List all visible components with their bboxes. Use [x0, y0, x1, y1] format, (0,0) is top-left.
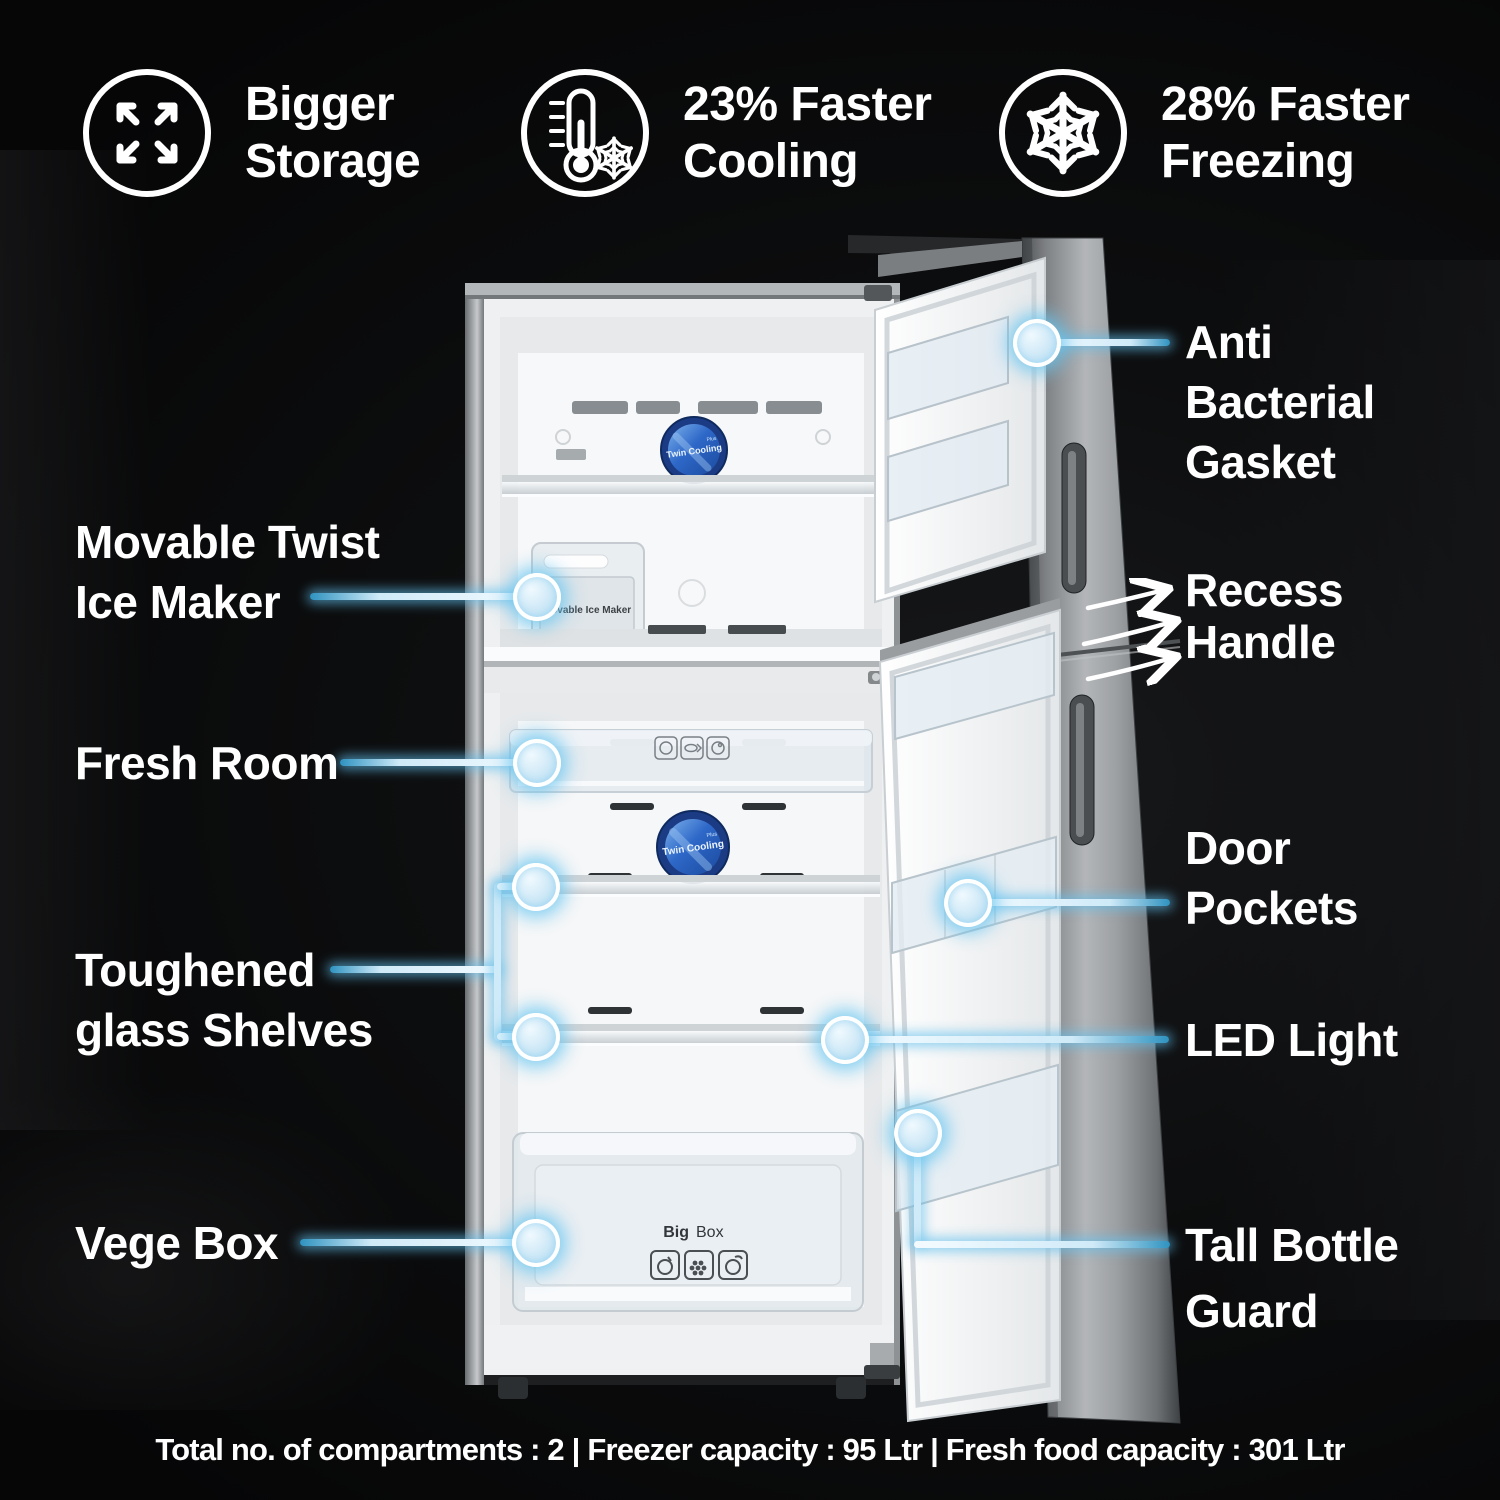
label-line: Handle [1185, 616, 1343, 668]
freezer-glass-shelf [502, 475, 880, 497]
feature-faster-freezing-label: 28% Faster Freezing [1161, 76, 1409, 190]
label-line: Anti [1185, 312, 1375, 372]
callout-label-vege-box: Vege Box [75, 1213, 278, 1273]
label-line: Recess [1185, 564, 1343, 616]
capacity-specs-text: Total no. of compartments : 2 | Freezer … [0, 1432, 1500, 1468]
callout-line-door-pockets [970, 899, 1170, 906]
feature-bigger-storage-label: Bigger Storage [245, 76, 420, 190]
callout-label-toughened-shelves: Toughened glass Shelves [75, 940, 373, 1060]
callout-dot-shelf-upper [512, 863, 560, 911]
big-box-label: Box [696, 1224, 724, 1241]
callout-bracket-shelves [494, 883, 501, 1041]
callout-dot-fresh-room [513, 739, 561, 787]
label-line: Movable Twist [75, 512, 379, 572]
twin-cooling-badge-freezer: Twin Cooling Plus [661, 417, 727, 483]
feature-faster-cooling-label: 23% Faster Cooling [683, 76, 931, 190]
callout-dot-led-light [821, 1016, 869, 1064]
label-line: Gasket [1185, 432, 1375, 492]
callout-line-tall-bottle [914, 1241, 1170, 1248]
feature-line: Bigger [245, 76, 420, 133]
callout-dot-vege-box [512, 1219, 560, 1267]
label-line: LED Light [1185, 1010, 1398, 1070]
feature-line: Cooling [683, 133, 931, 190]
label-line: Door [1185, 818, 1358, 878]
feature-faster-cooling: 23% Faster Cooling [515, 63, 931, 203]
callout-line-vege-box [300, 1239, 538, 1246]
callout-label-anti-bacterial-gasket: Anti Bacterial Gasket [1185, 312, 1375, 492]
callout-line-fresh-room [340, 759, 540, 766]
fresh-room-drawer [510, 730, 872, 792]
thermometer-snowflake-icon [515, 63, 655, 203]
recess-handle-arrows-icon [1080, 578, 1190, 688]
label-line: Tall Bottle [1185, 1212, 1398, 1278]
label-line: Guard [1185, 1278, 1398, 1344]
vege-box-drawer: Big Box [513, 1133, 863, 1311]
label-line: Ice Maker [75, 572, 379, 632]
callout-dot-shelf-lower [512, 1013, 560, 1061]
feature-faster-freezing: 28% Faster Freezing [993, 63, 1409, 203]
recess-handle-groove-lower [1070, 695, 1094, 845]
label-line: Fresh Room [75, 733, 338, 793]
callout-dot-door-pockets [944, 879, 992, 927]
label-line: Toughened [75, 940, 373, 1000]
feature-line: 23% Faster [683, 76, 931, 133]
twin-cooling-badge-fridge: Twin Cooling Plus [657, 811, 729, 883]
callout-line-led-light [847, 1036, 1169, 1043]
snowflake-icon [993, 63, 1133, 203]
feature-line: 28% Faster [1161, 76, 1409, 133]
freezer-door-open [848, 235, 1045, 602]
callout-label-movable-ice-maker: Movable Twist Ice Maker [75, 512, 379, 632]
callout-label-tall-bottle-guard: Tall Bottle Guard [1185, 1212, 1398, 1344]
callout-label-fresh-room: Fresh Room [75, 733, 338, 793]
callout-label-led-light: LED Light [1185, 1010, 1398, 1070]
label-line: Vege Box [75, 1213, 278, 1273]
callout-label-recess-handle: Recess Handle [1185, 564, 1343, 668]
label-line: Pockets [1185, 878, 1358, 938]
feature-line: Storage [245, 133, 420, 190]
compartment-divider [484, 647, 910, 693]
label-line: Bacterial [1185, 372, 1375, 432]
feature-bigger-storage: Bigger Storage [77, 63, 420, 203]
label-line: glass Shelves [75, 1000, 373, 1060]
product-infographic: Bigger Storage 23% Faster Cooling [0, 0, 1500, 1500]
callout-dot-gasket [1013, 319, 1061, 367]
recess-handle-groove-upper [1062, 443, 1086, 593]
callout-dot-ice-maker [513, 573, 561, 621]
callout-dot-tall-bottle [894, 1109, 942, 1157]
big-box-label-bold: Big [663, 1224, 689, 1241]
callout-label-door-pockets: Door Pockets [1185, 818, 1358, 938]
feature-line: Freezing [1161, 133, 1409, 190]
expand-arrows-icon [77, 63, 217, 203]
